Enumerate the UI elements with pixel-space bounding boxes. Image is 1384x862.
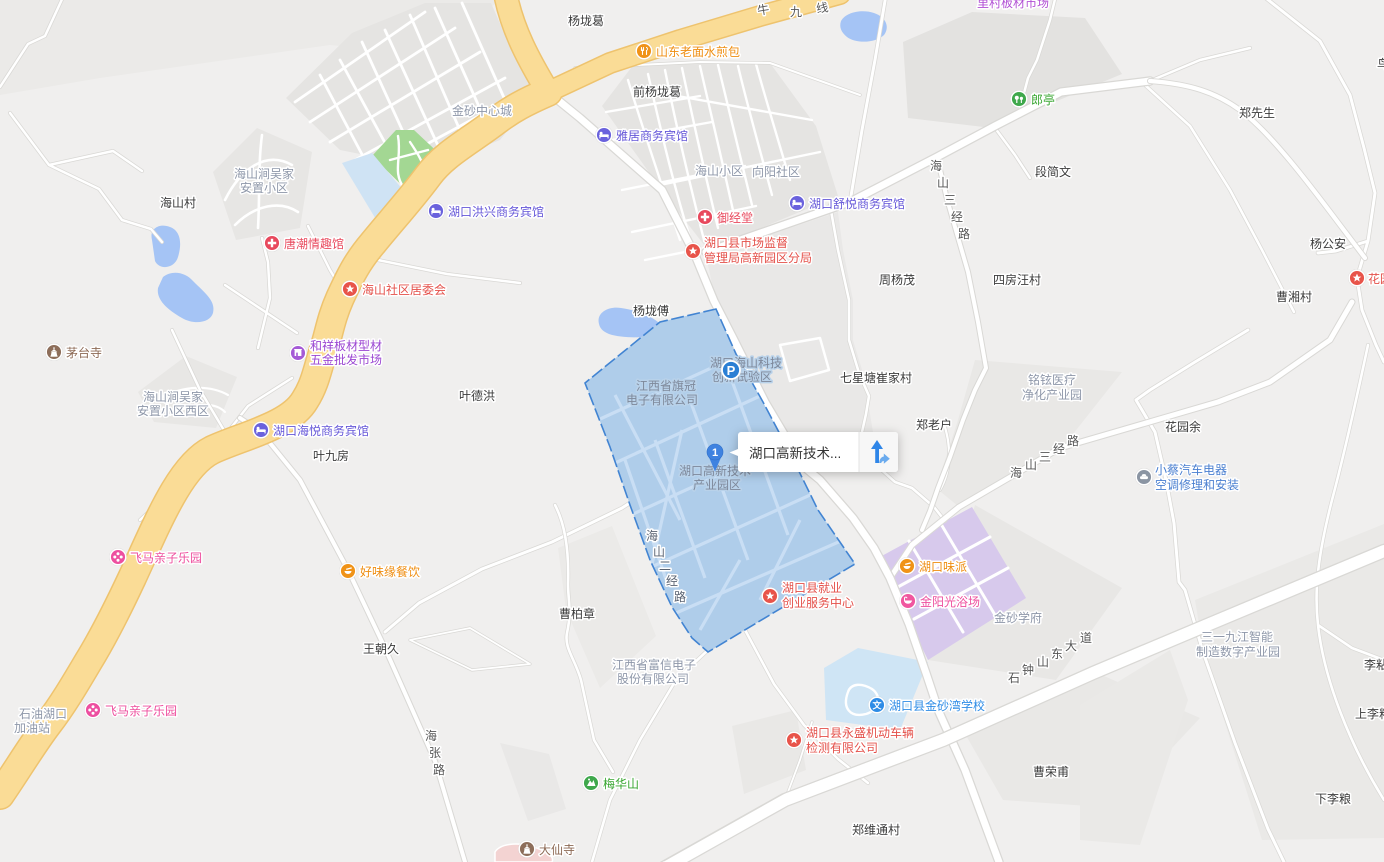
svg-text:叶德洪: 叶德洪 [459, 388, 495, 403]
svg-text:创业服务中心: 创业服务中心 [782, 595, 854, 610]
svg-text:三: 三 [944, 193, 956, 207]
svg-text:曹柏章: 曹柏章 [559, 606, 595, 621]
svg-text:江西省旗冠: 江西省旗冠 [636, 378, 696, 393]
svg-text:张: 张 [429, 746, 441, 760]
svg-text:大仙寺: 大仙寺 [539, 843, 575, 857]
svg-text:飞马亲子乐园: 飞马亲子乐园 [105, 704, 177, 718]
svg-text:P: P [727, 363, 736, 378]
svg-text:路: 路 [1067, 433, 1079, 448]
svg-text:海: 海 [1010, 465, 1022, 480]
svg-text:五金批发市场: 五金批发市场 [310, 352, 382, 367]
svg-text:鸟: 鸟 [1377, 56, 1384, 71]
svg-text:四房汪村: 四房汪村 [993, 272, 1041, 287]
svg-text:七星塘崔家村: 七星塘崔家村 [840, 370, 912, 385]
svg-text:加油站: 加油站 [14, 721, 50, 735]
svg-text:股份有限公司: 股份有限公司 [617, 672, 689, 686]
svg-text:雅居商务宾馆: 雅居商务宾馆 [616, 128, 688, 143]
svg-text:三: 三 [1039, 450, 1051, 464]
svg-text:金阳光浴场: 金阳光浴场 [920, 594, 980, 609]
svg-text:杨垅葛: 杨垅葛 [568, 13, 604, 28]
svg-text:湖口县金砂湾学校: 湖口县金砂湾学校 [889, 698, 985, 713]
svg-text:唐潮情趣馆: 唐潮情趣馆 [284, 236, 344, 251]
svg-text:石: 石 [1008, 671, 1020, 685]
svg-text:海山涧吴家: 海山涧吴家 [234, 166, 294, 181]
svg-text:小蔡汽车电器: 小蔡汽车电器 [1155, 462, 1227, 477]
svg-text:前杨垅葛: 前杨垅葛 [633, 84, 681, 99]
svg-text:路: 路 [674, 589, 686, 604]
svg-text:道: 道 [1080, 631, 1092, 645]
svg-text:钟: 钟 [1022, 662, 1034, 677]
svg-text:和祥板材型材: 和祥板材型材 [310, 339, 382, 353]
svg-text:安置小区: 安置小区 [240, 180, 288, 195]
svg-text:杨垅傅: 杨垅傅 [633, 303, 669, 318]
svg-text:净化产业园: 净化产业园 [1022, 388, 1082, 402]
svg-text:向阳社区: 向阳社区 [752, 164, 800, 179]
svg-text:线: 线 [815, 0, 829, 16]
svg-text:管理局高新园区分局: 管理局高新园区分局 [704, 250, 812, 265]
svg-text:制造数字产业园: 制造数字产业园 [1196, 644, 1280, 659]
svg-text:郑维通村: 郑维通村 [852, 822, 900, 837]
svg-text:经: 经 [666, 574, 678, 588]
svg-text:花园: 花园 [1368, 271, 1384, 286]
svg-text:杨公安: 杨公安 [1310, 236, 1346, 251]
svg-text:湖口洪兴商务宾馆: 湖口洪兴商务宾馆 [448, 204, 544, 219]
svg-text:九: 九 [790, 5, 802, 19]
svg-text:路: 路 [433, 762, 445, 777]
svg-text:梅华山: 梅华山 [603, 776, 639, 791]
svg-text:叶九房: 叶九房 [313, 448, 349, 463]
svg-text:二: 二 [659, 559, 671, 573]
svg-text:山: 山 [1037, 655, 1049, 669]
svg-text:海: 海 [646, 528, 658, 543]
svg-text:牛: 牛 [756, 1, 770, 18]
svg-text:御经堂: 御经堂 [717, 210, 753, 225]
svg-text:李粘: 李粘 [1364, 657, 1384, 672]
svg-text:金砂学府: 金砂学府 [994, 610, 1042, 625]
svg-text:山: 山 [653, 545, 665, 559]
svg-text:东: 东 [1051, 647, 1063, 661]
svg-text:曹湘村: 曹湘村 [1276, 289, 1312, 304]
svg-text:上李粮: 上李粮 [1355, 706, 1384, 721]
svg-text:郎亭: 郎亭 [1031, 92, 1055, 107]
svg-text:海: 海 [930, 158, 942, 173]
svg-text:大: 大 [1065, 639, 1077, 653]
svg-text:茅台寺: 茅台寺 [66, 345, 102, 360]
svg-text:郑先生: 郑先生 [1239, 105, 1275, 120]
svg-text:山: 山 [1025, 458, 1037, 472]
svg-text:经: 经 [1053, 442, 1065, 456]
svg-text:三一九江智能: 三一九江智能 [1201, 629, 1273, 644]
svg-text:郑老户: 郑老户 [916, 417, 952, 432]
svg-text:湖口舒悦商务宾馆: 湖口舒悦商务宾馆 [809, 196, 905, 211]
svg-text:海: 海 [425, 728, 437, 743]
svg-text:湖口味派: 湖口味派 [919, 559, 967, 574]
svg-text:检测有限公司: 检测有限公司 [806, 740, 878, 755]
svg-text:湖口县市场监督: 湖口县市场监督 [704, 235, 788, 250]
svg-text:石油湖口: 石油湖口 [19, 706, 67, 721]
svg-text:山东老面水煎包: 山东老面水煎包 [656, 44, 740, 59]
svg-text:海山村: 海山村 [160, 195, 196, 210]
svg-text:湖口海悦商务宾馆: 湖口海悦商务宾馆 [273, 423, 369, 438]
svg-text:海山社区居委会: 海山社区居委会 [362, 282, 446, 297]
svg-text:电子有限公司: 电子有限公司 [626, 393, 698, 407]
svg-text:铭铉医疗: 铭铉医疗 [1028, 372, 1076, 387]
svg-text:海山小区: 海山小区 [695, 163, 743, 178]
svg-text:1: 1 [712, 447, 718, 459]
svg-text:飞马亲子乐园: 飞马亲子乐园 [130, 551, 202, 565]
svg-text:海山涧吴家: 海山涧吴家 [143, 389, 203, 404]
svg-text:山: 山 [937, 176, 949, 190]
svg-text:路: 路 [958, 226, 970, 241]
svg-text:下李粮: 下李粮 [1315, 791, 1351, 806]
svg-text:湖口县就业: 湖口县就业 [782, 580, 842, 595]
svg-text:花园余: 花园余 [1165, 419, 1201, 434]
svg-text:空调修理和安装: 空调修理和安装 [1155, 477, 1239, 492]
svg-text:湖口高新技术...: 湖口高新技术... [749, 445, 841, 461]
svg-text:文: 文 [871, 700, 882, 711]
svg-text:安置小区西区: 安置小区西区 [137, 403, 209, 418]
svg-text:好味缘餐饮: 好味缘餐饮 [360, 564, 420, 579]
svg-text:江西省富信电子: 江西省富信电子 [612, 657, 696, 672]
svg-text:段简文: 段简文 [1035, 164, 1071, 179]
svg-text:周杨茂: 周杨茂 [879, 272, 915, 287]
svg-text:王朝久: 王朝久 [363, 642, 399, 656]
svg-text:经: 经 [951, 210, 963, 224]
svg-text:湖口县永盛机动车辆: 湖口县永盛机动车辆 [806, 725, 914, 740]
svg-text:金砂中心城: 金砂中心城 [452, 103, 512, 118]
svg-text:曹荣甫: 曹荣甫 [1033, 765, 1069, 779]
svg-text:里村板材市场: 里村板材市场 [977, 0, 1049, 10]
svg-text:产业园区: 产业园区 [693, 478, 741, 492]
